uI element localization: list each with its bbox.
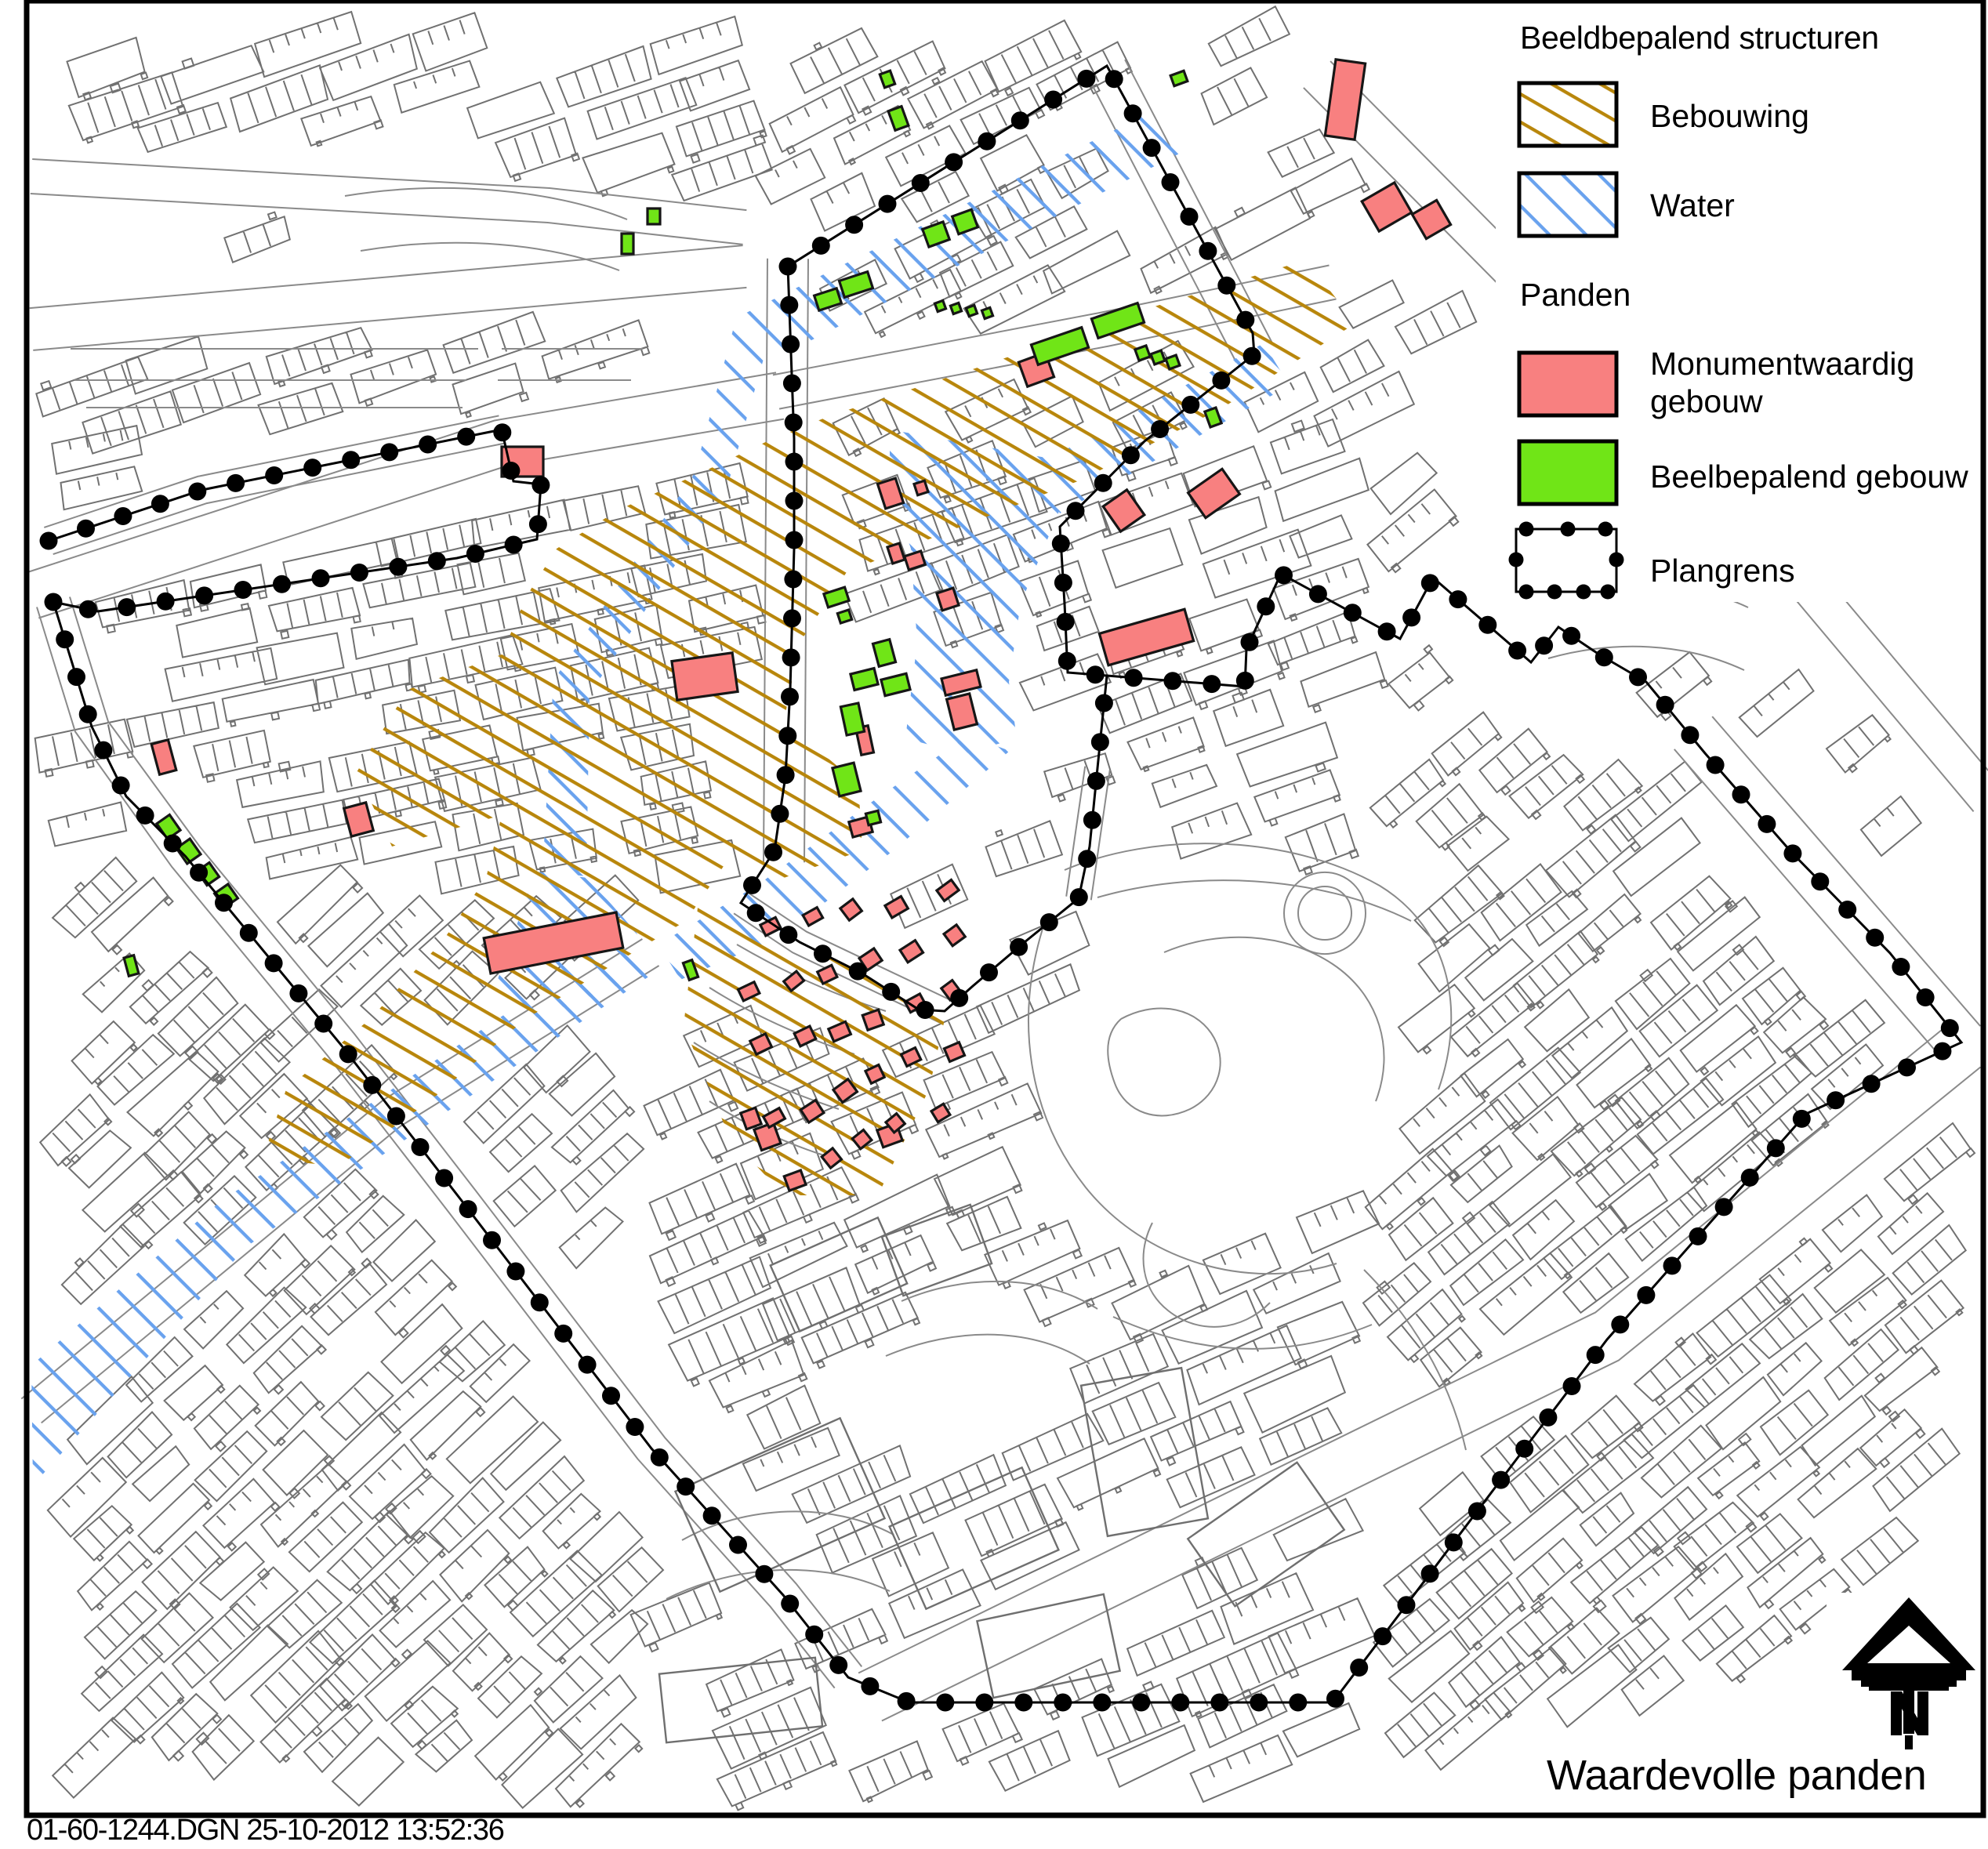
svg-text:Waardevolle panden: Waardevolle panden (1547, 1752, 1926, 1799)
svg-text:gebouw: gebouw (1650, 383, 1763, 419)
svg-text:Monumentwaardig: Monumentwaardig (1650, 346, 1914, 382)
svg-text:Beeldbepalend structuren: Beeldbepalend structuren (1520, 20, 1879, 56)
svg-text:Bebouwing: Bebouwing (1650, 98, 1809, 134)
svg-text:Plangrens: Plangrens (1650, 553, 1795, 589)
svg-text:Panden: Panden (1520, 277, 1631, 313)
svg-text:Water: Water (1650, 187, 1735, 223)
svg-text:01-60-1244.DGN 25-10-2012 13:5: 01-60-1244.DGN 25-10-2012 13:52:36 (27, 1814, 504, 1845)
svg-text:Beelbepalend gebouw: Beelbepalend gebouw (1650, 459, 1968, 495)
